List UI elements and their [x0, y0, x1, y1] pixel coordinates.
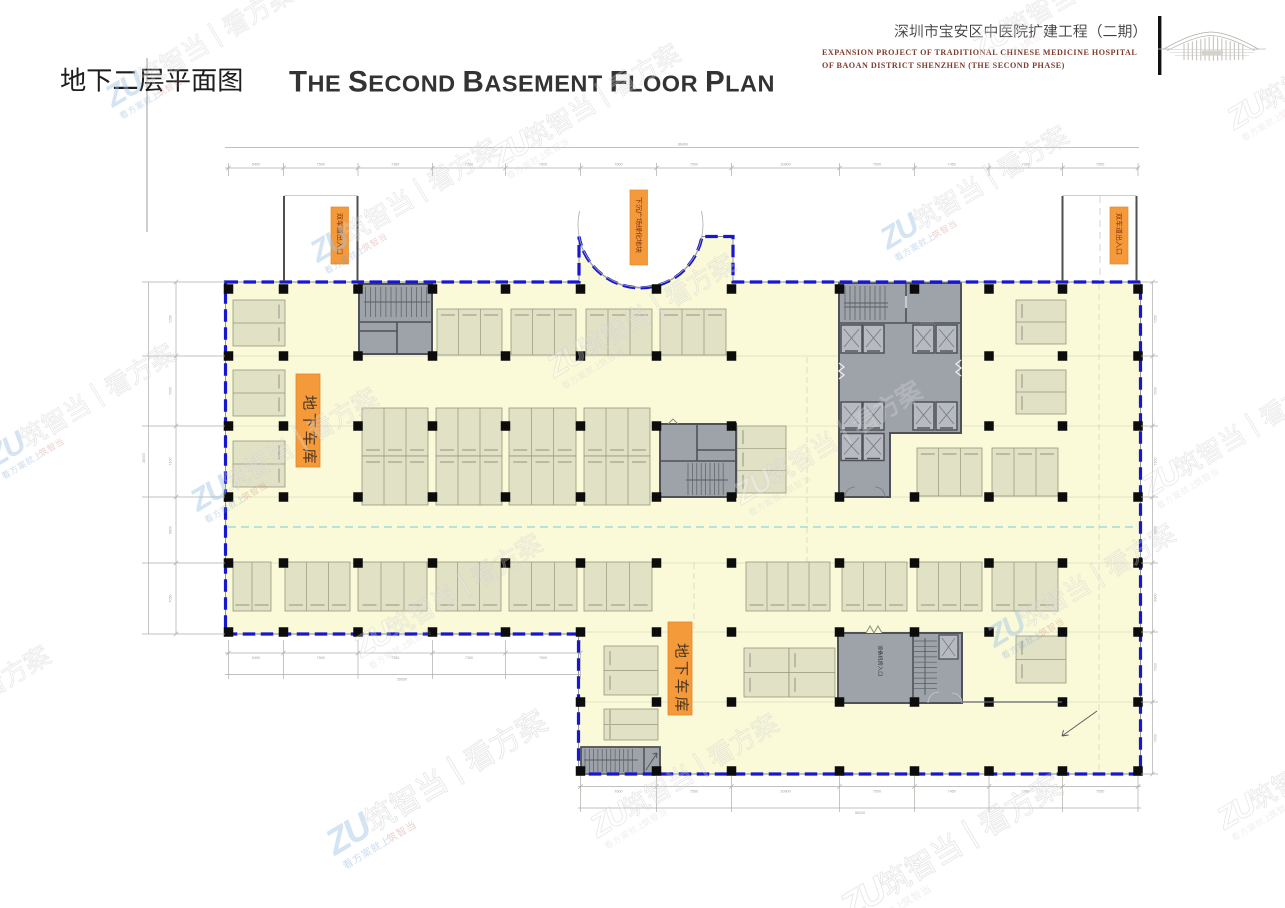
svg-text:35000: 35000 — [142, 453, 146, 463]
svg-text:7500: 7500 — [873, 163, 881, 167]
svg-text:7500: 7500 — [539, 163, 547, 167]
svg-text:7000: 7000 — [1154, 387, 1158, 395]
svg-text:7250: 7250 — [1154, 315, 1158, 323]
svg-text:7000: 7000 — [1154, 734, 1158, 742]
svg-text:7100: 7100 — [169, 457, 173, 465]
svg-text:7550: 7550 — [1096, 790, 1104, 794]
svg-text:OF BAOAN DISTRICT SHENZHEN (TH: OF BAOAN DISTRICT SHENZHEN (THE SECOND P… — [822, 61, 1065, 70]
svg-text:7350: 7350 — [391, 163, 399, 167]
svg-text:5400: 5400 — [252, 163, 260, 167]
svg-text:7600: 7600 — [614, 790, 622, 794]
svg-text:7550: 7550 — [1096, 163, 1104, 167]
svg-text:7000: 7000 — [169, 387, 173, 395]
svg-text:7500: 7500 — [690, 163, 698, 167]
svg-text:7450: 7450 — [948, 163, 956, 167]
svg-text:10800: 10800 — [780, 790, 790, 794]
svg-text:7500: 7500 — [539, 656, 547, 660]
svg-text:7450: 7450 — [948, 790, 956, 794]
svg-text:7500: 7500 — [317, 656, 325, 660]
svg-text:7500: 7500 — [690, 790, 698, 794]
svg-text:7600: 7600 — [614, 163, 622, 167]
svg-text:10800: 10800 — [780, 163, 790, 167]
svg-text:35050: 35050 — [397, 678, 407, 682]
svg-text:7500: 7500 — [873, 790, 881, 794]
svg-text:THE SECOND BASEMENT FLOOR PLAN: THE SECOND BASEMENT FLOOR PLAN — [289, 66, 775, 99]
svg-text:7250: 7250 — [169, 315, 173, 323]
svg-text:7050: 7050 — [169, 594, 173, 602]
svg-text:7000: 7000 — [1154, 663, 1158, 671]
svg-text:86400: 86400 — [678, 142, 688, 146]
svg-text:5400: 5400 — [252, 656, 260, 660]
svg-text:56200: 56200 — [855, 811, 865, 815]
svg-text:6600: 6600 — [169, 526, 173, 534]
svg-text:7500: 7500 — [317, 163, 325, 167]
svg-text:6900: 6900 — [1154, 593, 1158, 601]
svg-text:7300: 7300 — [465, 656, 473, 660]
